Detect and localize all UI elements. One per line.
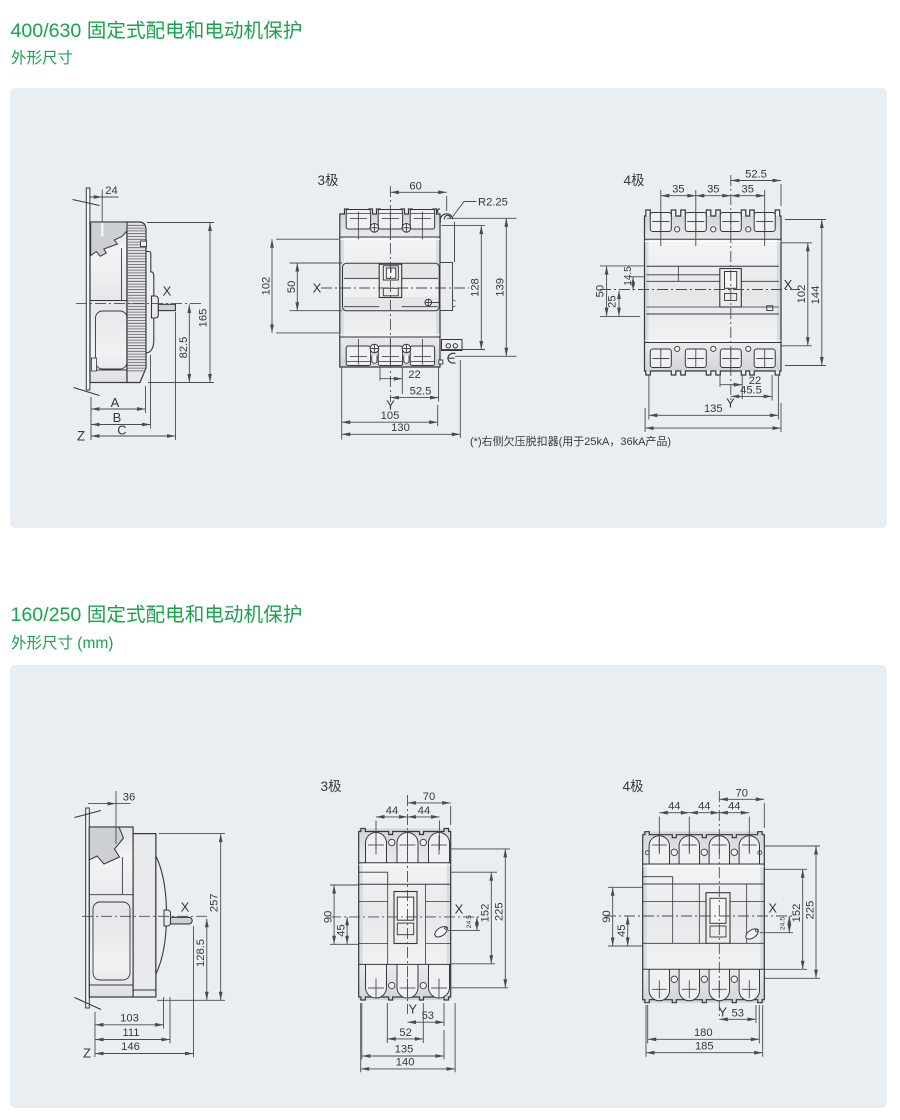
svg-text:35: 35 [672, 184, 684, 196]
svg-text:14.5: 14.5 [623, 266, 634, 286]
svg-text:Y: Y [726, 396, 735, 411]
svg-text:180: 180 [694, 1027, 713, 1039]
svg-text:C: C [117, 423, 126, 438]
svg-text:X: X [455, 902, 464, 917]
svg-text:128: 128 [469, 278, 481, 297]
svg-text:128.5: 128.5 [195, 939, 207, 967]
svg-text:44: 44 [386, 805, 398, 817]
svg-text:3极: 3极 [320, 779, 342, 794]
svg-text:139: 139 [494, 278, 506, 297]
svg-text:144: 144 [810, 286, 822, 305]
svg-text:Y: Y [408, 1002, 417, 1017]
svg-text:185: 185 [695, 1040, 714, 1052]
svg-text:X: X [163, 284, 172, 299]
svg-text:36: 36 [123, 792, 135, 804]
svg-text:22: 22 [408, 369, 420, 381]
svg-text:X: X [784, 277, 793, 292]
svg-text:24: 24 [105, 185, 117, 197]
svg-text:44: 44 [418, 805, 430, 817]
svg-text:(*)右侧欠压脱扣器(用于25kA，36kA产品): (*)右侧欠压脱扣器(用于25kA，36kA产品) [470, 434, 671, 448]
svg-text:50: 50 [595, 285, 607, 297]
svg-text:70: 70 [423, 791, 435, 803]
svg-text:35: 35 [707, 184, 719, 196]
svg-text:102: 102 [261, 277, 273, 296]
svg-text:111: 111 [122, 1027, 139, 1039]
svg-text:60: 60 [409, 180, 421, 192]
svg-text:45: 45 [336, 924, 348, 936]
svg-text:45: 45 [616, 925, 628, 937]
svg-text:X: X [768, 901, 777, 916]
svg-text:Z: Z [77, 429, 85, 444]
svg-text:102: 102 [796, 285, 808, 304]
svg-text:135: 135 [395, 1044, 414, 1056]
svg-text:103: 103 [120, 1012, 139, 1024]
svg-text:24.5: 24.5 [779, 917, 786, 930]
svg-text:52: 52 [399, 1027, 411, 1039]
svg-text:25: 25 [607, 295, 619, 307]
svg-text:24.5: 24.5 [466, 915, 473, 928]
svg-text:82.5: 82.5 [178, 337, 190, 359]
svg-text:90: 90 [323, 911, 335, 923]
svg-text:225: 225 [493, 902, 505, 921]
svg-text:50: 50 [286, 281, 298, 293]
svg-text:90: 90 [601, 910, 613, 922]
svg-text:35: 35 [741, 184, 753, 196]
svg-text:R2.25: R2.25 [478, 197, 508, 209]
svg-text:4极: 4极 [622, 779, 644, 794]
svg-text:105: 105 [381, 410, 400, 422]
svg-text:152: 152 [480, 904, 492, 923]
svg-text:44: 44 [668, 801, 680, 813]
svg-text:X: X [181, 900, 190, 915]
svg-text:53: 53 [731, 1007, 743, 1019]
svg-text:135: 135 [704, 403, 723, 415]
svg-text:Y: Y [718, 1005, 727, 1020]
svg-text:257: 257 [209, 893, 221, 912]
svg-text:152: 152 [791, 904, 803, 923]
svg-text:146: 146 [121, 1041, 140, 1053]
svg-text:3极: 3极 [317, 173, 339, 188]
svg-text:130: 130 [391, 422, 410, 434]
svg-text:X: X [313, 281, 322, 296]
svg-text:44: 44 [698, 801, 710, 813]
svg-text:Z: Z [83, 1046, 91, 1061]
svg-text:165: 165 [197, 309, 209, 328]
svg-text:44: 44 [728, 801, 740, 813]
svg-text:A: A [111, 395, 120, 410]
svg-text:52.5: 52.5 [745, 169, 767, 181]
svg-text:4极: 4极 [623, 173, 645, 188]
svg-text:45.5: 45.5 [740, 384, 762, 396]
svg-text:70: 70 [735, 787, 747, 799]
svg-text:52.5: 52.5 [410, 385, 432, 397]
svg-text:140: 140 [396, 1057, 415, 1069]
svg-text:225: 225 [805, 901, 817, 920]
